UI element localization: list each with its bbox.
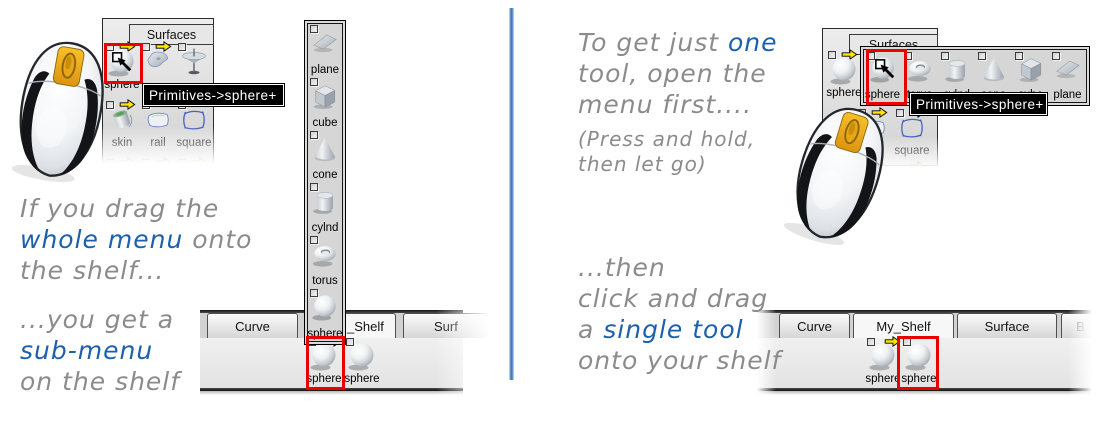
plane-icon [311, 29, 339, 57]
cylinder-icon [311, 187, 339, 215]
shelf-tab-myshelf[interactable]: My_Shelf [853, 313, 954, 338]
caption-emphasis: sub-menu [20, 336, 153, 365]
menu-item-label: cube [304, 117, 346, 129]
highlight-box [866, 49, 907, 105]
caption-right-top: To get just one tool, open the menu firs… [578, 27, 778, 177]
caption-line: onto your shelf [578, 345, 781, 376]
tooltip-text: Primitives->sphere [916, 97, 1035, 112]
torus-icon [311, 240, 339, 268]
caption-line: If you drag the [20, 193, 252, 224]
cone-icon [311, 135, 339, 163]
highlight-box [306, 336, 345, 390]
torn-off-menu-vertical: plane cube cone cylnd torus sphere [304, 20, 346, 345]
menu-item-cone[interactable]: cone [308, 130, 342, 183]
shelf-shadow [200, 391, 463, 395]
cube-icon [311, 82, 339, 110]
revolve-icon [179, 47, 209, 77]
caption-line: the shelf... [20, 255, 252, 286]
caption-line: ...you get a [20, 304, 180, 335]
plane-icon [1054, 55, 1082, 83]
section-divider [509, 8, 514, 380]
menu-item-cylnd[interactable]: cylnd [308, 182, 342, 235]
sphere-icon [311, 293, 339, 321]
shelf-tool-sphere[interactable] [347, 341, 377, 371]
menu-item-plane[interactable]: plane [1049, 50, 1086, 102]
menu-item-torus[interactable]: torus [308, 235, 342, 288]
caption-left-top: If you drag the whole menu onto the shel… [20, 193, 252, 286]
caption-line: menu first.... [578, 89, 778, 120]
loft-icon [143, 47, 173, 77]
tooltip-text: Primitives->sphere [149, 88, 268, 103]
caption-line: ...then [578, 252, 781, 283]
menu-item-label: cone [304, 169, 346, 181]
caption-right-bottom: ...then click and drag a single tool ont… [578, 252, 781, 376]
shelf-fade-right [436, 300, 508, 400]
tooltip: Primitives->sphere+ [143, 84, 284, 106]
caption-emphasis: one [728, 28, 778, 57]
menu-item-label: torus [304, 275, 346, 287]
caption-line: whole menu onto [20, 224, 252, 255]
menu-item-plane[interactable]: plane [308, 24, 342, 77]
tooltip-plus: + [1035, 97, 1043, 112]
cone-icon [980, 55, 1008, 83]
highlight-box [104, 43, 143, 84]
shelf-tab-curve[interactable]: Curve [779, 313, 850, 338]
caption-note: (Press and hold, then let go) [578, 127, 778, 177]
tutorial-canvas: If you drag the whole menu onto the shel… [0, 0, 1100, 434]
caption-line: tool, open the [578, 58, 778, 89]
cylinder-icon [943, 55, 971, 83]
caption-line: click and drag [578, 283, 781, 314]
menu-item-label: plane [304, 64, 346, 76]
shelf-shadow [757, 391, 1100, 395]
cube-icon [1017, 55, 1045, 83]
caption-line: a single tool [578, 314, 781, 345]
shelf-tool-sphere[interactable] [868, 341, 898, 371]
tooltip: Primitives->sphere+ [910, 93, 1047, 115]
sphere-icon [829, 55, 859, 85]
menu-item-label: plane [1044, 89, 1091, 101]
tooltip-plus: + [268, 88, 276, 103]
shelf-fade-right [1068, 300, 1100, 404]
caption-line: To get just one [578, 27, 778, 58]
shelf-tab-curve[interactable]: Curve [207, 313, 298, 338]
menu-item-sphere[interactable]: sphere [308, 288, 342, 341]
caption-line: on the shelf [20, 366, 180, 397]
caption-emphasis: whole menu [20, 225, 183, 254]
shelf-tab-row: Curve My_Shelf Surface B [757, 313, 1100, 338]
highlight-box [897, 336, 939, 390]
shelf-tool-label: sphere [341, 373, 383, 385]
caption-emphasis: single tool [603, 315, 743, 344]
menu-item-cube[interactable]: cube [308, 77, 342, 130]
caption-line: sub-menu [20, 335, 180, 366]
caption-left-bottom: ...you get a sub-menu on the shelf [20, 304, 180, 397]
menu-item-label: cylnd [304, 222, 346, 234]
shelf-tab-surface[interactable]: Surface [957, 313, 1057, 338]
torus-icon [906, 55, 934, 83]
